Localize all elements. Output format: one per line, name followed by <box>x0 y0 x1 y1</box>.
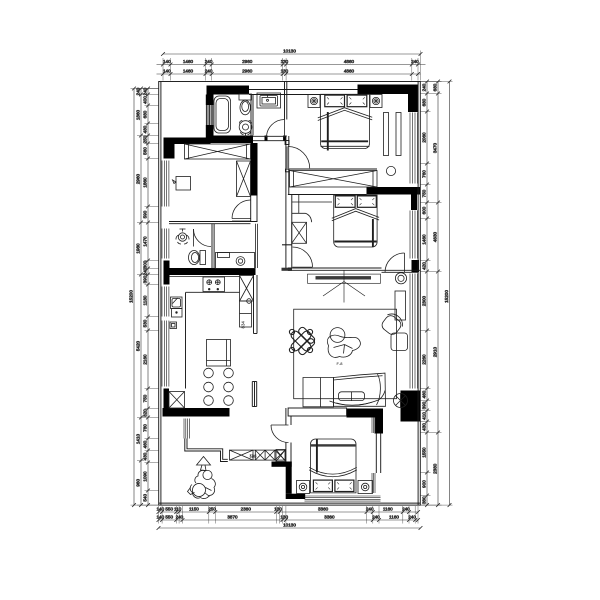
svg-text:1460: 1460 <box>183 59 194 64</box>
svg-text:130: 130 <box>280 515 288 520</box>
svg-text:4860: 4860 <box>344 69 355 74</box>
svg-text:420: 420 <box>422 262 427 270</box>
svg-text:460: 460 <box>422 390 427 398</box>
svg-text:750: 750 <box>143 394 148 402</box>
svg-text:1160: 1160 <box>383 507 393 512</box>
svg-text:2380: 2380 <box>433 463 438 474</box>
svg-text:1460: 1460 <box>183 69 194 74</box>
svg-text:240: 240 <box>422 83 427 91</box>
svg-text:2060: 2060 <box>422 132 427 143</box>
svg-text:1470: 1470 <box>143 236 148 247</box>
svg-text:1160: 1160 <box>389 515 399 520</box>
svg-text:5420: 5420 <box>136 340 141 351</box>
svg-text:400: 400 <box>143 96 148 104</box>
svg-text:1980: 1980 <box>136 243 141 254</box>
svg-text:3470: 3470 <box>433 142 438 153</box>
svg-text:390: 390 <box>143 275 148 283</box>
svg-text:2360: 2360 <box>241 507 252 512</box>
svg-text:380: 380 <box>422 496 427 504</box>
svg-text:140: 140 <box>156 515 164 520</box>
svg-text:1150: 1150 <box>189 507 199 512</box>
svg-text:130: 130 <box>281 59 289 64</box>
svg-text:10130: 10130 <box>283 49 296 54</box>
svg-text:2960: 2960 <box>242 59 253 64</box>
svg-text:590: 590 <box>143 210 148 218</box>
svg-text:460: 460 <box>143 440 148 448</box>
svg-text:1090: 1090 <box>143 471 148 482</box>
svg-text:560: 560 <box>143 147 148 155</box>
svg-text:1460: 1460 <box>422 234 427 245</box>
svg-text:2300: 2300 <box>422 295 427 306</box>
svg-text:140: 140 <box>163 69 171 74</box>
svg-text:110: 110 <box>174 507 182 512</box>
svg-text:550: 550 <box>165 515 173 520</box>
svg-text:960: 960 <box>136 479 141 487</box>
svg-text:3360: 3360 <box>324 515 335 520</box>
svg-text:530: 530 <box>143 319 148 327</box>
svg-text:15200: 15200 <box>444 290 449 303</box>
svg-text:680: 680 <box>433 83 438 91</box>
svg-text:3360: 3360 <box>318 507 329 512</box>
svg-text:1410: 1410 <box>136 433 141 444</box>
svg-text:F-8: F-8 <box>337 361 344 366</box>
svg-text:900: 900 <box>422 480 427 488</box>
svg-text:250: 250 <box>143 135 148 143</box>
svg-text:1180: 1180 <box>143 295 148 305</box>
svg-text:320: 320 <box>143 409 148 417</box>
svg-text:780: 780 <box>143 424 148 432</box>
svg-text:2160: 2160 <box>143 354 148 365</box>
svg-text:4860: 4860 <box>344 59 355 64</box>
svg-text:680: 680 <box>422 98 427 106</box>
svg-text:410: 410 <box>422 412 427 420</box>
svg-text:4630: 4630 <box>433 231 438 242</box>
svg-text:2260: 2260 <box>422 354 427 365</box>
svg-text:3870: 3870 <box>227 515 238 520</box>
svg-text:834: 834 <box>241 321 246 329</box>
svg-text:750: 750 <box>422 189 427 197</box>
svg-text:1550: 1550 <box>422 447 427 458</box>
svg-text:2960: 2960 <box>242 69 253 74</box>
svg-text:鞋柜: 鞋柜 <box>250 454 258 459</box>
svg-text:390: 390 <box>422 401 427 409</box>
svg-text:10130: 10130 <box>283 523 296 528</box>
svg-text:600: 600 <box>422 206 427 214</box>
svg-text:2910: 2910 <box>433 346 438 357</box>
svg-text:480: 480 <box>143 125 148 133</box>
svg-text:760: 760 <box>422 170 427 178</box>
svg-text:1860: 1860 <box>143 177 148 188</box>
svg-text:130: 130 <box>281 69 289 74</box>
svg-text:680: 680 <box>143 110 148 118</box>
svg-text:540: 540 <box>143 494 148 502</box>
svg-text:15200: 15200 <box>129 290 134 303</box>
svg-text:140: 140 <box>156 507 164 512</box>
svg-text:430: 430 <box>422 423 427 431</box>
svg-text:130: 130 <box>274 507 282 512</box>
svg-text:430: 430 <box>143 452 148 460</box>
svg-text:2960: 2960 <box>136 173 141 184</box>
svg-text:1860: 1860 <box>136 109 141 120</box>
svg-text:140: 140 <box>163 59 171 64</box>
svg-text:300: 300 <box>143 260 148 268</box>
svg-text:550: 550 <box>165 507 173 512</box>
